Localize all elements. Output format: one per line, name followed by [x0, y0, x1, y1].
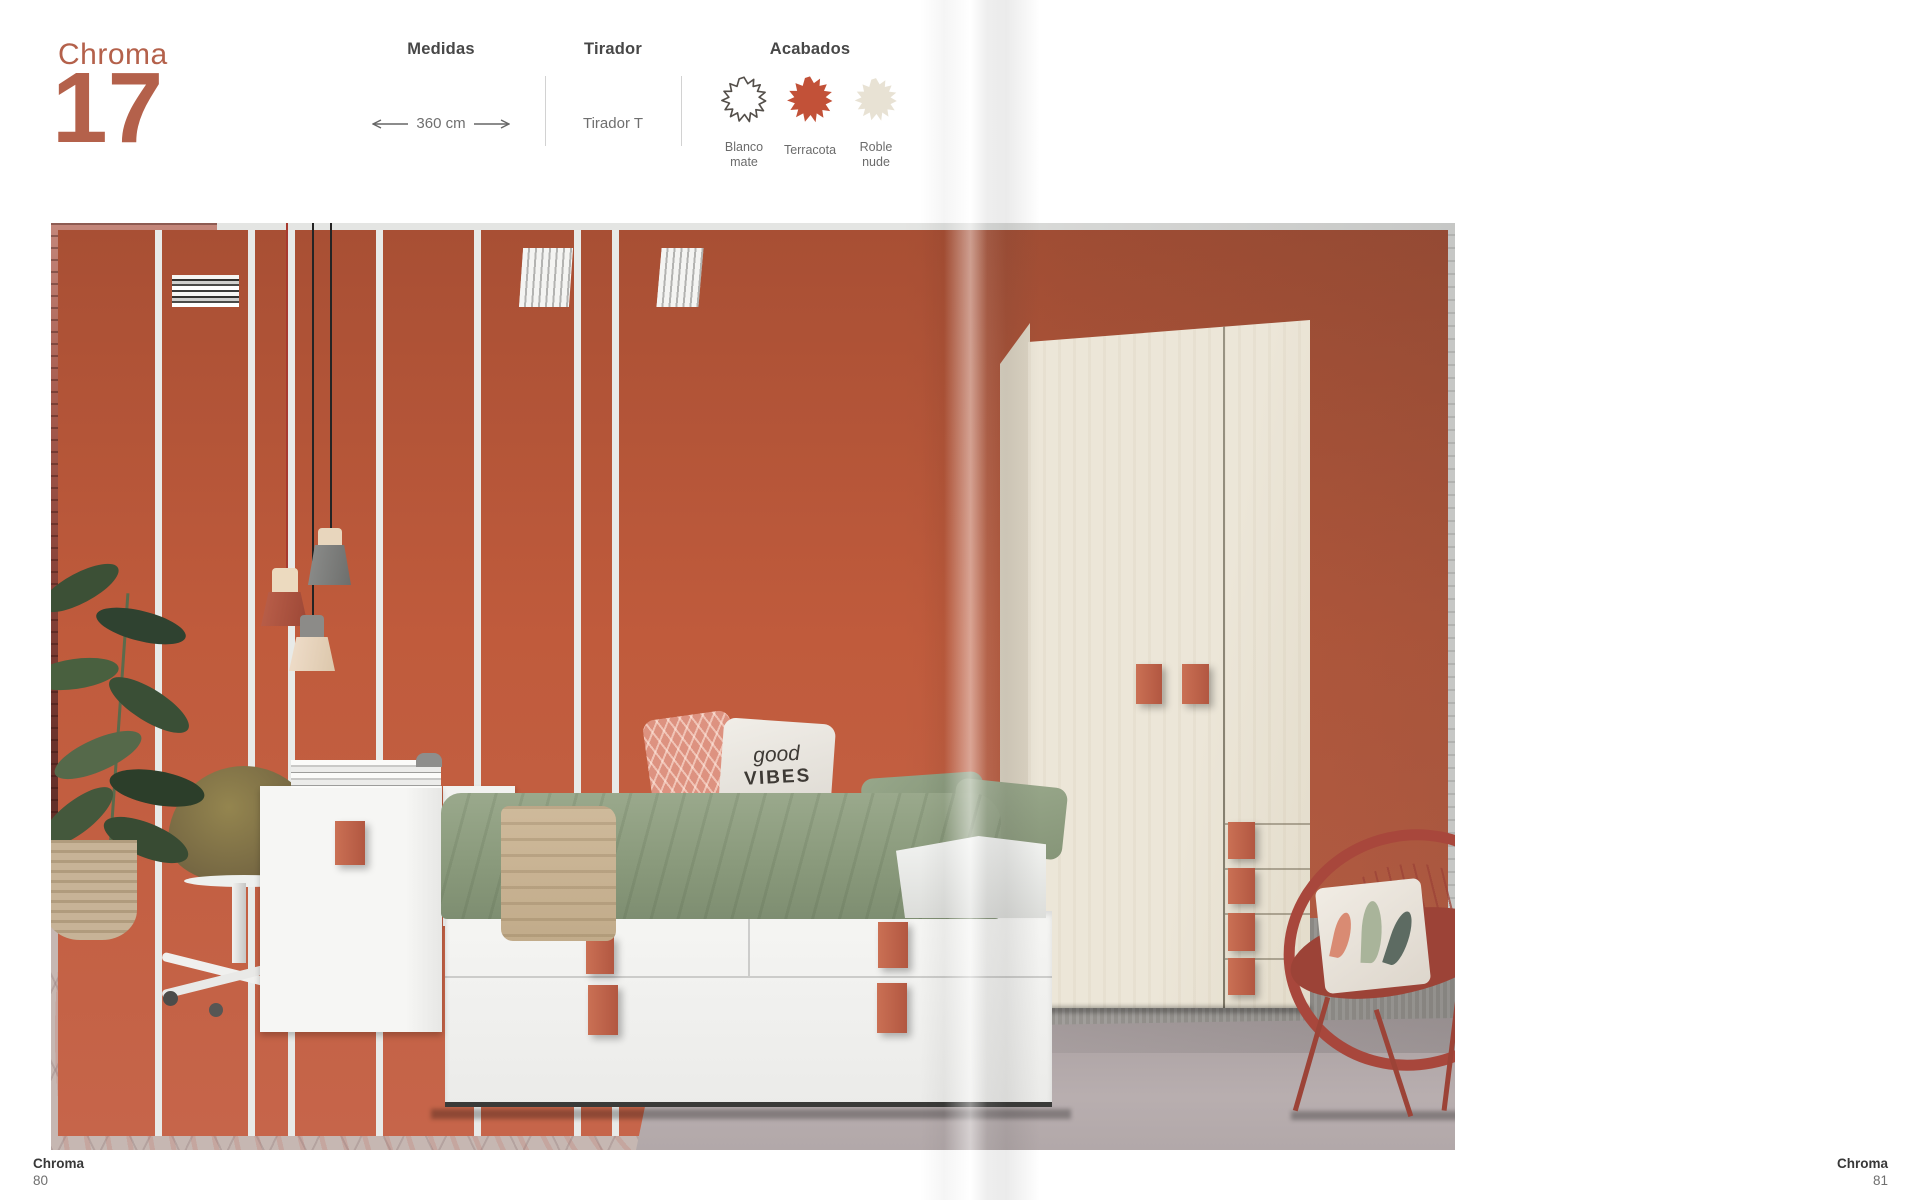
pendant-lamp-cream-cap — [300, 615, 324, 639]
spec-acabados: Acabados Blancomate Terracota Roblenude — [690, 40, 930, 170]
book-stack — [172, 275, 239, 307]
composition-number: 17 — [52, 58, 163, 158]
finish-terracota: Terracota — [777, 73, 843, 170]
bed-drawer-split — [748, 911, 750, 976]
lamp-cord-black — [330, 223, 332, 530]
spec-medidas: Medidas 360 cm — [355, 40, 527, 132]
lamp-cord-red — [286, 223, 288, 568]
wardrobe-door-seam — [1223, 320, 1225, 1008]
pendant-lamp-terracotta-cap — [272, 568, 298, 594]
wardrobe — [1028, 320, 1310, 1008]
finish-blanco-mate: Blancomate — [711, 73, 777, 170]
bed-drawer-line — [445, 976, 1052, 978]
wardrobe-door-handle — [1182, 664, 1209, 704]
blanket-tan — [501, 806, 616, 941]
bed-floor-shadow — [431, 1109, 1071, 1119]
medidas-value: 360 cm — [416, 115, 465, 132]
rattan-chair-pillow — [1315, 878, 1431, 994]
wall-shelf — [51, 223, 708, 321]
bed-base-bottom-edge — [445, 1102, 1052, 1107]
shelf-divider — [155, 230, 162, 1136]
shelf-divider — [248, 230, 255, 1136]
wardrobe-drawer-handle — [1228, 822, 1255, 859]
arrow-right-icon — [474, 119, 510, 129]
acabados-label: Acabados — [690, 40, 930, 59]
wardrobe-drawer-handle — [1228, 958, 1255, 995]
wardrobe-door-handle — [1136, 664, 1162, 704]
room-photo: good VIBES — [51, 223, 1455, 1150]
chair-caster — [209, 1003, 223, 1017]
tirador-label: Tirador — [548, 40, 678, 59]
pillow-text: good VIBES — [730, 741, 824, 792]
feather-print-sage — [1361, 901, 1383, 964]
footer-brand: Chroma — [33, 1156, 84, 1173]
wardrobe-drawer-handle — [1228, 913, 1255, 951]
footer-page-number: 81 — [1837, 1173, 1888, 1190]
footer-brand: Chroma — [1837, 1156, 1888, 1173]
books-vertical — [519, 248, 573, 307]
footer-left: Chroma 80 — [33, 1156, 84, 1190]
bed-sheet-white — [896, 836, 1046, 918]
wardrobe-drawer-handle — [1228, 868, 1255, 904]
bed-drawer-handle — [878, 922, 908, 968]
feather-print-teal — [1382, 909, 1416, 968]
finish-roble-nude: Roblenude — [843, 73, 909, 170]
office-chair-pedestal — [232, 883, 246, 963]
arrow-left-icon — [372, 119, 408, 129]
headphones — [416, 753, 442, 767]
pendant-lamp-gray — [308, 545, 351, 585]
footer-page-number: 80 — [33, 1173, 84, 1190]
chair-caster — [163, 991, 178, 1006]
tirador-value: Tirador T — [583, 115, 643, 132]
pendant-lamp-cream — [289, 637, 335, 671]
cabinet-handle — [335, 821, 365, 865]
chair-floor-shadow — [1291, 1111, 1455, 1120]
feather-print-coral — [1329, 911, 1354, 959]
paint-splat-icon — [782, 73, 838, 129]
bed-drawer-handle — [877, 983, 907, 1033]
paint-splat-icon — [717, 73, 771, 129]
bed-drawer-handle — [586, 936, 614, 974]
plant-basket — [51, 840, 137, 940]
spec-divider — [545, 76, 546, 146]
paint-splat-icon — [850, 73, 902, 129]
medidas-label: Medidas — [355, 40, 527, 59]
bed-drawer-handle — [588, 985, 618, 1035]
spec-divider — [681, 76, 682, 146]
footer-right: Chroma 81 — [1837, 1156, 1888, 1190]
books-vertical — [656, 248, 703, 307]
spec-tirador: Tirador Tirador T — [548, 40, 678, 132]
